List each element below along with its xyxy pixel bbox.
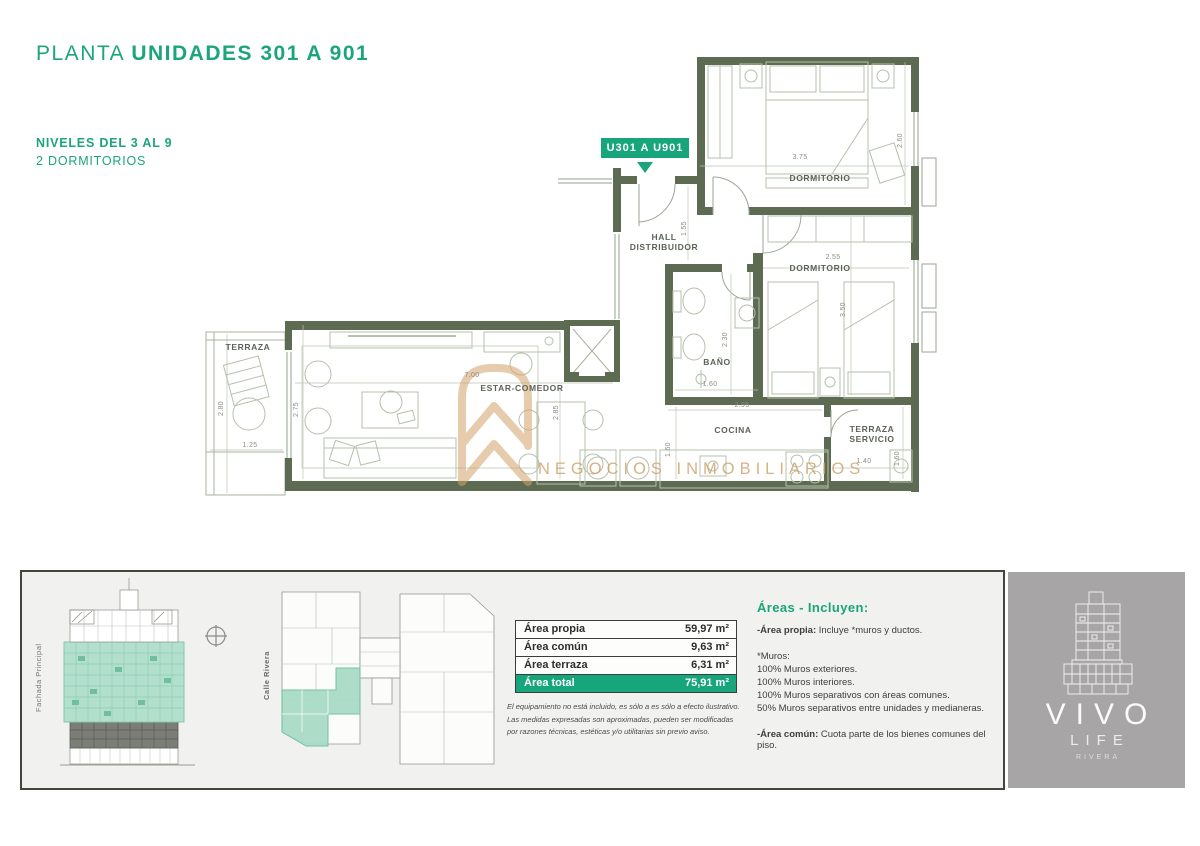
- disclaimer-line: El equipamiento no está incluido, es sól…: [507, 701, 740, 714]
- table-row: Área común9,63 m²: [516, 639, 736, 657]
- logo-building-icon: [1042, 590, 1152, 702]
- watermark-text: NEGOCIOS INMOBILIARIOS: [538, 460, 865, 479]
- unit-badge: U301 A U901: [601, 138, 689, 158]
- dim-1-60-servicio: 1.60: [894, 451, 901, 466]
- badge-arrow-icon: [637, 162, 653, 173]
- row-label: Área propia: [516, 621, 655, 638]
- row-label: Área común: [516, 639, 655, 656]
- dim-3-50: 3.50: [840, 302, 847, 317]
- dim-2-55: 2.55: [826, 254, 841, 261]
- row-label: Área terraza: [516, 657, 655, 674]
- dim-2-75: 2.75: [293, 402, 300, 417]
- dim-2-30: 2.30: [722, 332, 729, 347]
- muros-title: *Muros:: [757, 650, 1007, 663]
- room-label-terraza-servicio: TERRAZA SERVICIO: [849, 424, 894, 444]
- street-label: Calle Rivera: [262, 651, 271, 700]
- row-value: 59,97 m²: [655, 621, 736, 638]
- disclaimer: El equipamiento no está incluido, es sól…: [507, 701, 740, 739]
- muros-item: 50% Muros separativos entre unidades y m…: [757, 702, 1007, 715]
- elevator-shaft: [567, 323, 617, 380]
- logo-sub: LIFE: [1008, 732, 1185, 749]
- table-row: Área propia59,97 m²: [516, 621, 736, 639]
- windows: [287, 112, 918, 458]
- exterior-panels: [922, 158, 936, 352]
- area-table: Área propia59,97 m² Área común9,63 m² Ár…: [515, 620, 737, 693]
- page: PLANTA UNIDADES 301 A 901 NIVELES DEL 3 …: [0, 0, 1200, 846]
- building-elevation: [20, 570, 270, 788]
- dim-2-85: 2.85: [553, 405, 560, 420]
- elevation-label: Fachada Principal: [34, 643, 43, 712]
- room-label-cocina: COCINA: [714, 425, 751, 435]
- dim-1-25: 1.25: [243, 442, 258, 449]
- room-label-hall: HALL DISTRIBUIDOR: [630, 232, 699, 252]
- muros-item: 100% Muros interiores.: [757, 676, 1007, 689]
- row-value: 75,91 m²: [655, 675, 736, 692]
- table-row-total: Área total75,91 m²: [516, 675, 736, 692]
- disclaimer-line: Las medidas expresadas son aproximadas, …: [507, 714, 740, 727]
- dim-2-60: 2.60: [897, 133, 904, 148]
- room-label-terraza: TERRAZA: [226, 342, 271, 352]
- disclaimer-line: por razones técnicas, estéticas y/o util…: [507, 726, 740, 739]
- room-label-bano: BAÑO: [703, 357, 730, 367]
- muros-item: 100% Muros separativos con áreas comunes…: [757, 689, 1007, 702]
- room-label-dormitorio-2: DORMITORIO: [789, 263, 850, 273]
- row-value: 9,63 m²: [655, 639, 736, 656]
- muros-item: 100% Muros exteriores.: [757, 663, 1007, 676]
- dimension-lines: [210, 62, 909, 493]
- area-comun-line: -Área común: Cuota parte de los bienes c…: [757, 729, 1007, 751]
- dim-2-80: 2.80: [218, 401, 225, 416]
- logo-city: RIVERA: [1008, 754, 1185, 761]
- walls: [285, 57, 919, 492]
- dim-2-95: 2.95: [735, 402, 750, 409]
- logo-name: VIVO: [1008, 698, 1185, 732]
- dim-3-75: 3.75: [793, 154, 808, 161]
- dim-1-60-cocina: 1.60: [665, 442, 672, 457]
- area-propia-line: -Área propia: Incluye *muros y ductos.: [757, 625, 1007, 636]
- row-label: Área total: [516, 675, 655, 692]
- dim-1-55: 1.55: [681, 221, 688, 236]
- dim-1-60-bano: 1.60: [703, 381, 718, 388]
- brand-logo-box: VIVO LIFE RIVERA: [1008, 572, 1185, 788]
- table-row: Área terraza6,31 m²: [516, 657, 736, 675]
- room-label-dormitorio-1: DORMITORIO: [789, 173, 850, 183]
- compass-icon: [205, 625, 227, 647]
- muros-list: *Muros: 100% Muros exteriores. 100% Muro…: [757, 650, 1007, 715]
- areas-heading: Áreas - Incluyen:: [757, 600, 1007, 615]
- dim-7-00: 7.00: [465, 372, 480, 379]
- furniture: [223, 62, 912, 488]
- key-plan: [272, 586, 507, 782]
- room-label-estar-comedor: ESTAR-COMEDOR: [480, 383, 563, 393]
- areas-include: Áreas - Incluyen: -Área propia: Incluye …: [757, 600, 1007, 755]
- row-value: 6,31 m²: [655, 657, 736, 674]
